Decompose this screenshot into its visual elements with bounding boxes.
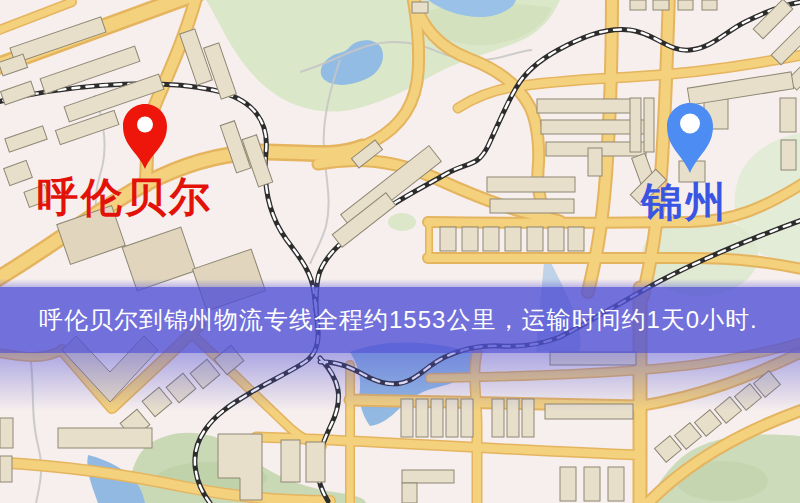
banner-fade-top <box>0 279 800 287</box>
destination-label: 锦州 <box>641 182 729 223</box>
banner-fade <box>0 353 800 411</box>
route-info-banner: 呼伦贝尔到锦州物流专线全程约1553公里，运输时间约1天0小时. <box>0 287 800 353</box>
map-svg[interactable] <box>0 0 800 503</box>
origin-label: 呼伦贝尔 <box>37 177 213 218</box>
destination-pin-hole <box>680 114 700 134</box>
map-container[interactable]: 呼伦贝尔 锦州 呼伦贝尔到锦州物流专线全程约1553公里，运输时间约1天0小时. <box>0 0 800 503</box>
origin-pin-hole <box>137 117 153 133</box>
route-info-text: 呼伦贝尔到锦州物流专线全程约1553公里，运输时间约1天0小时. <box>0 304 758 336</box>
